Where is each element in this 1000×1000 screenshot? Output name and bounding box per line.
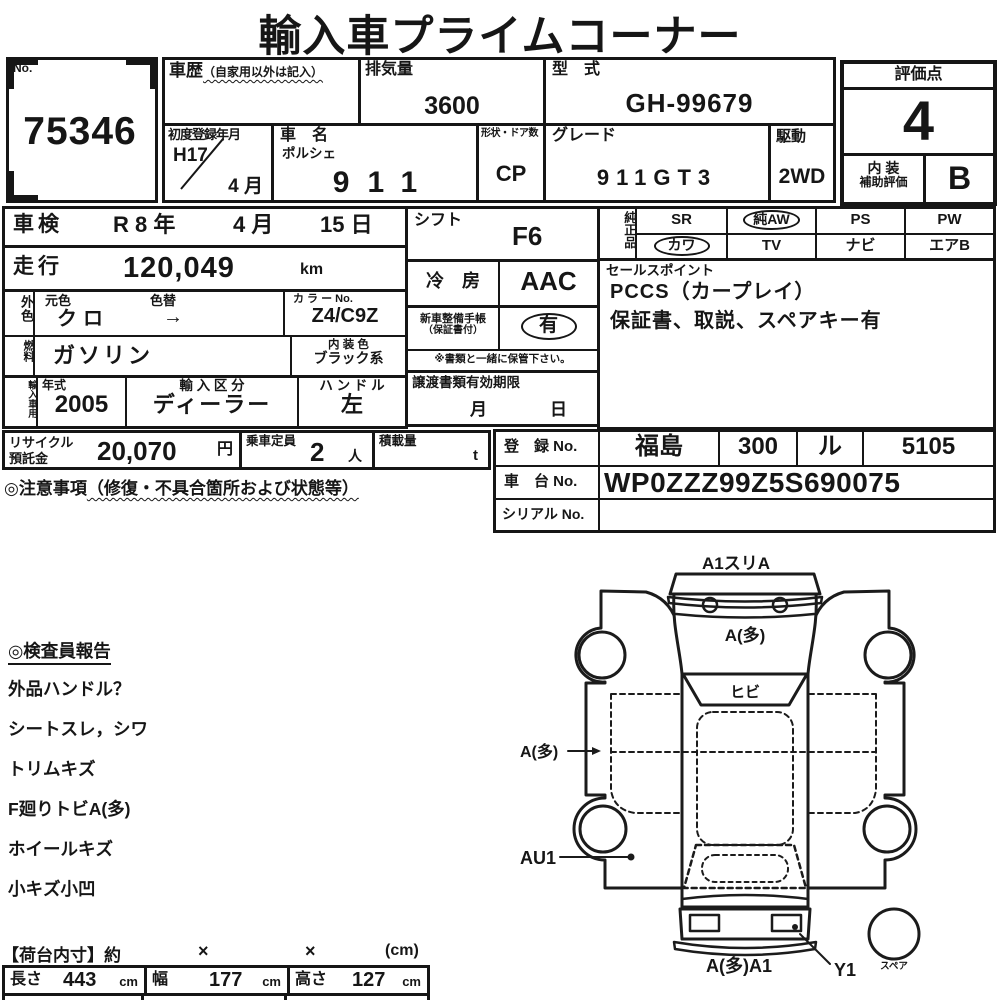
lot-number-box: No. 75346 [6, 57, 158, 203]
car-name-cell: 車 名 ポルシェ 911 [271, 123, 479, 203]
transfer-docs-row: 譲渡書類有効期限 月 日 [408, 370, 597, 424]
registration-row: 登 録 No. 福島 300 ル 5105 [496, 432, 993, 465]
vehicle-main-block: 車検 R 8 年 4 月 15 日 走行 120,049 km 外色 元色 色替… [2, 206, 408, 429]
cargo-table: 長さ 443 cm 幅 177 cm 高さ 127 cm [2, 965, 430, 996]
genuine-item-aw: 純AW [726, 209, 815, 233]
capacity-unit: 人 [348, 449, 362, 464]
service-book-value: 有 [521, 313, 577, 340]
transfer-docs-label: 譲渡書類有効期限 [408, 373, 597, 390]
cargo-length-cell: 長さ 443 cm [5, 968, 144, 993]
import-row: 輸入車用 年式 2005 輸 入 区 分 ディーラー ハ ン ド ル 左 [5, 375, 405, 426]
shift-value: F6 [512, 223, 542, 250]
car-name-value: 911 [274, 167, 476, 199]
color-change-value: → [163, 307, 183, 328]
diagram-top-label: A1スリA [702, 554, 770, 573]
displacement-label: 排気量 [365, 62, 413, 79]
color-no-value: Z4/C9Z [285, 306, 405, 327]
sales-points-block: セールスポイント PCCS（カープレイ） 保証書、取説、スペアキー有 [597, 258, 996, 430]
drive-cell: 駆動 2WD [768, 123, 836, 203]
import-category-label: 輸 入 区 分 [127, 378, 297, 393]
shaken-month: 4 月 [233, 213, 273, 236]
diagram-taillight-label: Y1 [834, 960, 856, 980]
drive-value: 2WD [771, 166, 833, 188]
genuine-parts-block: 純正品 SR 純AW PS PW カワ TV ナビ エアB [597, 206, 996, 261]
inspector-item: トリムキズ [8, 756, 148, 781]
taillight-leader-line [800, 934, 830, 964]
genuine-item-sr: SR [637, 209, 726, 233]
score-box: 評価点 4 内 装 補助評価 B [840, 60, 997, 206]
diagram-left-door-label: A(多) [520, 742, 558, 761]
service-book-sub-label: （保証書付） [408, 326, 498, 337]
mileage-row: 走行 120,049 km [5, 245, 405, 289]
inspector-item: ホイールキズ [8, 836, 148, 861]
diagram-rear-label: A(多)A1 [706, 955, 772, 976]
base-color-value: クロ [57, 309, 109, 330]
displacement-value: 3600 [361, 93, 543, 119]
mileage-unit: km [300, 262, 323, 279]
ac-value: AAC [500, 262, 597, 305]
sales-point-line: PCCS（カープレイ） [600, 278, 993, 303]
handle-label: ハ ン ド ル [299, 378, 405, 393]
inspector-report: ◎検査員報告 外品ハンドル？ シートスレ，シワ トリムキズ F廻りトビA(多) … [8, 638, 148, 901]
transfer-docs-day: 日 [550, 401, 567, 419]
shaken-label: 車検 [13, 214, 63, 236]
interior-score-row: 内 装 補助評価 B [844, 153, 993, 202]
ac-row: 冷 房 AAC [408, 259, 597, 305]
cargo-length-label: 長さ [10, 972, 42, 989]
recycle-value: 20,070 [97, 438, 177, 465]
score-value: 4 [844, 92, 993, 150]
inspector-item: 小キズ小凹 [8, 876, 148, 901]
shaken-year: R 8 年 [113, 213, 175, 236]
cargo-x1: × [198, 941, 209, 962]
caution-line: ◎注意事項（修復・不具合箇所および状態等） [4, 474, 359, 499]
service-book-label: 新車整備手帳 [408, 308, 498, 326]
diagram-rocker-label: AU1 [520, 848, 556, 868]
genuine-item-pw: PW [904, 209, 993, 233]
auction-sheet: 輸入車プライムコーナー No. 75346 車歴（自家用以外は記入） 排気量 3… [0, 0, 1000, 1000]
rear-bumper-lip [674, 942, 816, 955]
cargo-header: 【荷台内寸】約 × × (cm) [2, 941, 430, 963]
genuine-item-ps: PS [815, 209, 904, 233]
genuine-item-kawa: カワ [637, 233, 726, 258]
cargo-length-value: 443 [63, 970, 96, 991]
page-title: 輸入車プライムコーナー [0, 2, 1000, 64]
diagram-windshield-label: ヒビ [730, 684, 760, 701]
chassis-label: 車 台 No. [496, 467, 600, 498]
grade-cell: グレード 911GT3 [543, 123, 771, 203]
handle-value: 左 [299, 393, 405, 416]
shaken-row: 車検 R 8 年 4 月 15 日 [5, 209, 405, 245]
cargo-width-unit: cm [262, 975, 281, 989]
genuine-item-airbag: エアB [904, 233, 993, 258]
load-unit: t [473, 448, 478, 464]
fuel-label: 燃料 [5, 337, 35, 375]
lot-number-value: 75346 [9, 112, 151, 153]
load-cell: 積載量 t [372, 430, 491, 470]
cargo-unit-note: (cm) [385, 942, 419, 960]
interior-score-value: B [926, 156, 993, 202]
model-code-cell: 型 式 GH-99679 [543, 57, 836, 126]
sales-point-line: 保証書、取説、スペアキー有 [600, 303, 993, 332]
interior-sub-label: 補助評価 [844, 176, 923, 189]
capacity-cell: 乗車定員 2 人 [239, 430, 375, 470]
import-label: 輸入車用 [5, 378, 38, 426]
grade-label: グレード [552, 128, 616, 145]
corner-mark [6, 171, 38, 203]
interior-label: 内 装 [844, 156, 923, 176]
base-color-label: 元色 [45, 294, 71, 308]
spare-tire [869, 909, 919, 959]
cargo-height-value: 127 [352, 970, 385, 991]
model-year-value: 2005 [38, 392, 125, 417]
recycle-sub-label: 預託金 [9, 451, 73, 467]
shift-label: シフト [414, 213, 462, 230]
diagram-spare-label: スペア [880, 961, 908, 972]
genuine-item-tv: TV [726, 233, 815, 258]
first-registration-cell: 初度登録年月 H17 4 月 [162, 123, 274, 203]
registration-label: 登 録 No. [496, 432, 600, 465]
exterior-color-row: 外色 元色 色替 クロ → カ ラ ー No. Z4/C9Z [5, 289, 405, 335]
history-note: （自家用以外は記入） [203, 65, 323, 79]
history-cell: 車歴（自家用以外は記入） [162, 57, 361, 126]
sales-points-label: セールスポイント [600, 261, 993, 278]
caution-label: ◎注意事項 [4, 479, 87, 498]
registration-kana: ル [796, 432, 862, 465]
cargo-height-label: 高さ [295, 972, 327, 989]
cargo-width-value: 177 [209, 970, 242, 991]
recycle-cell: リサイクル 預託金 20,070 円 [2, 430, 242, 470]
body-doors-cell: 形状・ドア数 CP [476, 123, 546, 203]
capacity-value: 2 [310, 439, 324, 466]
rocker-leader-dot [628, 854, 635, 861]
load-label: 積載量 [379, 435, 417, 448]
color-no-label: カ ラ ー No. [285, 292, 405, 306]
registration-block: 登 録 No. 福島 300 ル 5105 車 台 No. WP0ZZZ99Z5… [493, 429, 996, 533]
car-name-label: 車 名 [280, 128, 328, 145]
cargo-height-unit: cm [402, 975, 421, 989]
inspector-item: シートスレ，シワ [8, 716, 148, 741]
fuel-value: ガソリン [53, 344, 153, 367]
equipment-block: シフト F6 冷 房 AAC 新車整備手帳 （保証書付） 有 ※書類と一緒に保管… [405, 206, 600, 427]
cargo-x2: × [305, 941, 316, 962]
model-code-label: 型 式 [552, 62, 600, 79]
transfer-docs-month: 月 [470, 401, 487, 419]
registration-class: 300 [718, 432, 796, 465]
serial-value [604, 500, 993, 530]
body-doors-value: CP [479, 162, 543, 185]
grade-value: 911GT3 [546, 166, 768, 189]
model-code-value: GH-99679 [546, 90, 833, 117]
shift-row: シフト F6 [408, 209, 597, 259]
import-category-value: ディーラー [127, 393, 297, 416]
recycle-label: リサイクル [9, 435, 73, 451]
cargo-height-cell: 高さ 127 cm [287, 968, 427, 993]
diagram-hood-label: A(多) [725, 625, 766, 645]
interior-color-label: 内 装 色 [292, 337, 405, 351]
service-book-row: 新車整備手帳 （保証書付） 有 [408, 305, 597, 349]
registration-number: 5105 [862, 432, 993, 465]
history-label: 車歴 [165, 60, 203, 80]
fuel-row: 燃料 ガソリン 内 装 色 ブラック系 [5, 335, 405, 375]
drive-label: 駆動 [776, 129, 806, 145]
registration-region: 福島 [600, 432, 718, 465]
model-year-label: 年式 [38, 378, 125, 392]
mileage-value: 120,049 [123, 253, 235, 283]
cargo-width-cell: 幅 177 cm [144, 968, 287, 993]
genuine-item-navi: ナビ [815, 233, 904, 258]
cargo-header-label: 【荷台内寸】約 [2, 941, 121, 966]
chassis-value: WP0ZZZ99Z5S690075 [604, 467, 993, 498]
first-registration-month: 4 月 [228, 177, 263, 197]
cargo-table-next-row-stub [2, 996, 430, 1000]
body-doors-label: 形状・ドア数 [481, 129, 538, 140]
caution-note: （修復・不具合箇所および状態等） [87, 479, 359, 498]
genuine-parts-label: 純正品 [600, 209, 637, 258]
document-note-row: ※書類と一緒に保管下さい。 [408, 349, 597, 370]
displacement-cell: 排気量 3600 [358, 57, 546, 126]
serial-row: シリアル No. [496, 498, 993, 530]
serial-label: シリアル No. [496, 500, 600, 530]
exterior-color-label: 外色 [5, 292, 35, 335]
interior-color-value: ブラック系 [292, 351, 405, 366]
rear-bumper [680, 909, 810, 939]
lot-number-label: No. [13, 62, 32, 75]
front-bumper [670, 574, 820, 594]
ac-label: 冷 房 [408, 262, 500, 305]
inspector-item: 外品ハンドル？ [8, 676, 148, 701]
inspector-title: ◎検査員報告 [8, 638, 111, 665]
first-registration-label: 初度登録年月 [168, 128, 240, 142]
chassis-row: 車 台 No. WP0ZZZ99Z5S690075 [496, 465, 993, 498]
inspector-item: F廻りトビA(多) [8, 796, 148, 821]
document-note: ※書類と一緒に保管下さい。 [434, 353, 570, 365]
corner-mark [126, 57, 158, 89]
damage-diagram: A1スリA A(多) ヒビ A(多) AU1 A(多)A1 Y1 スペア [478, 552, 1000, 1000]
capacity-label: 乗車定員 [246, 435, 296, 448]
cargo-width-label: 幅 [152, 972, 168, 989]
taillight-damage-dot [792, 924, 798, 930]
car-maker: ポルシェ [282, 147, 336, 161]
mileage-label: 走行 [13, 256, 63, 278]
cargo-length-unit: cm [119, 975, 138, 989]
recycle-unit: 円 [217, 442, 233, 459]
shaken-day: 15 日 [320, 213, 373, 236]
score-label: 評価点 [844, 64, 993, 90]
